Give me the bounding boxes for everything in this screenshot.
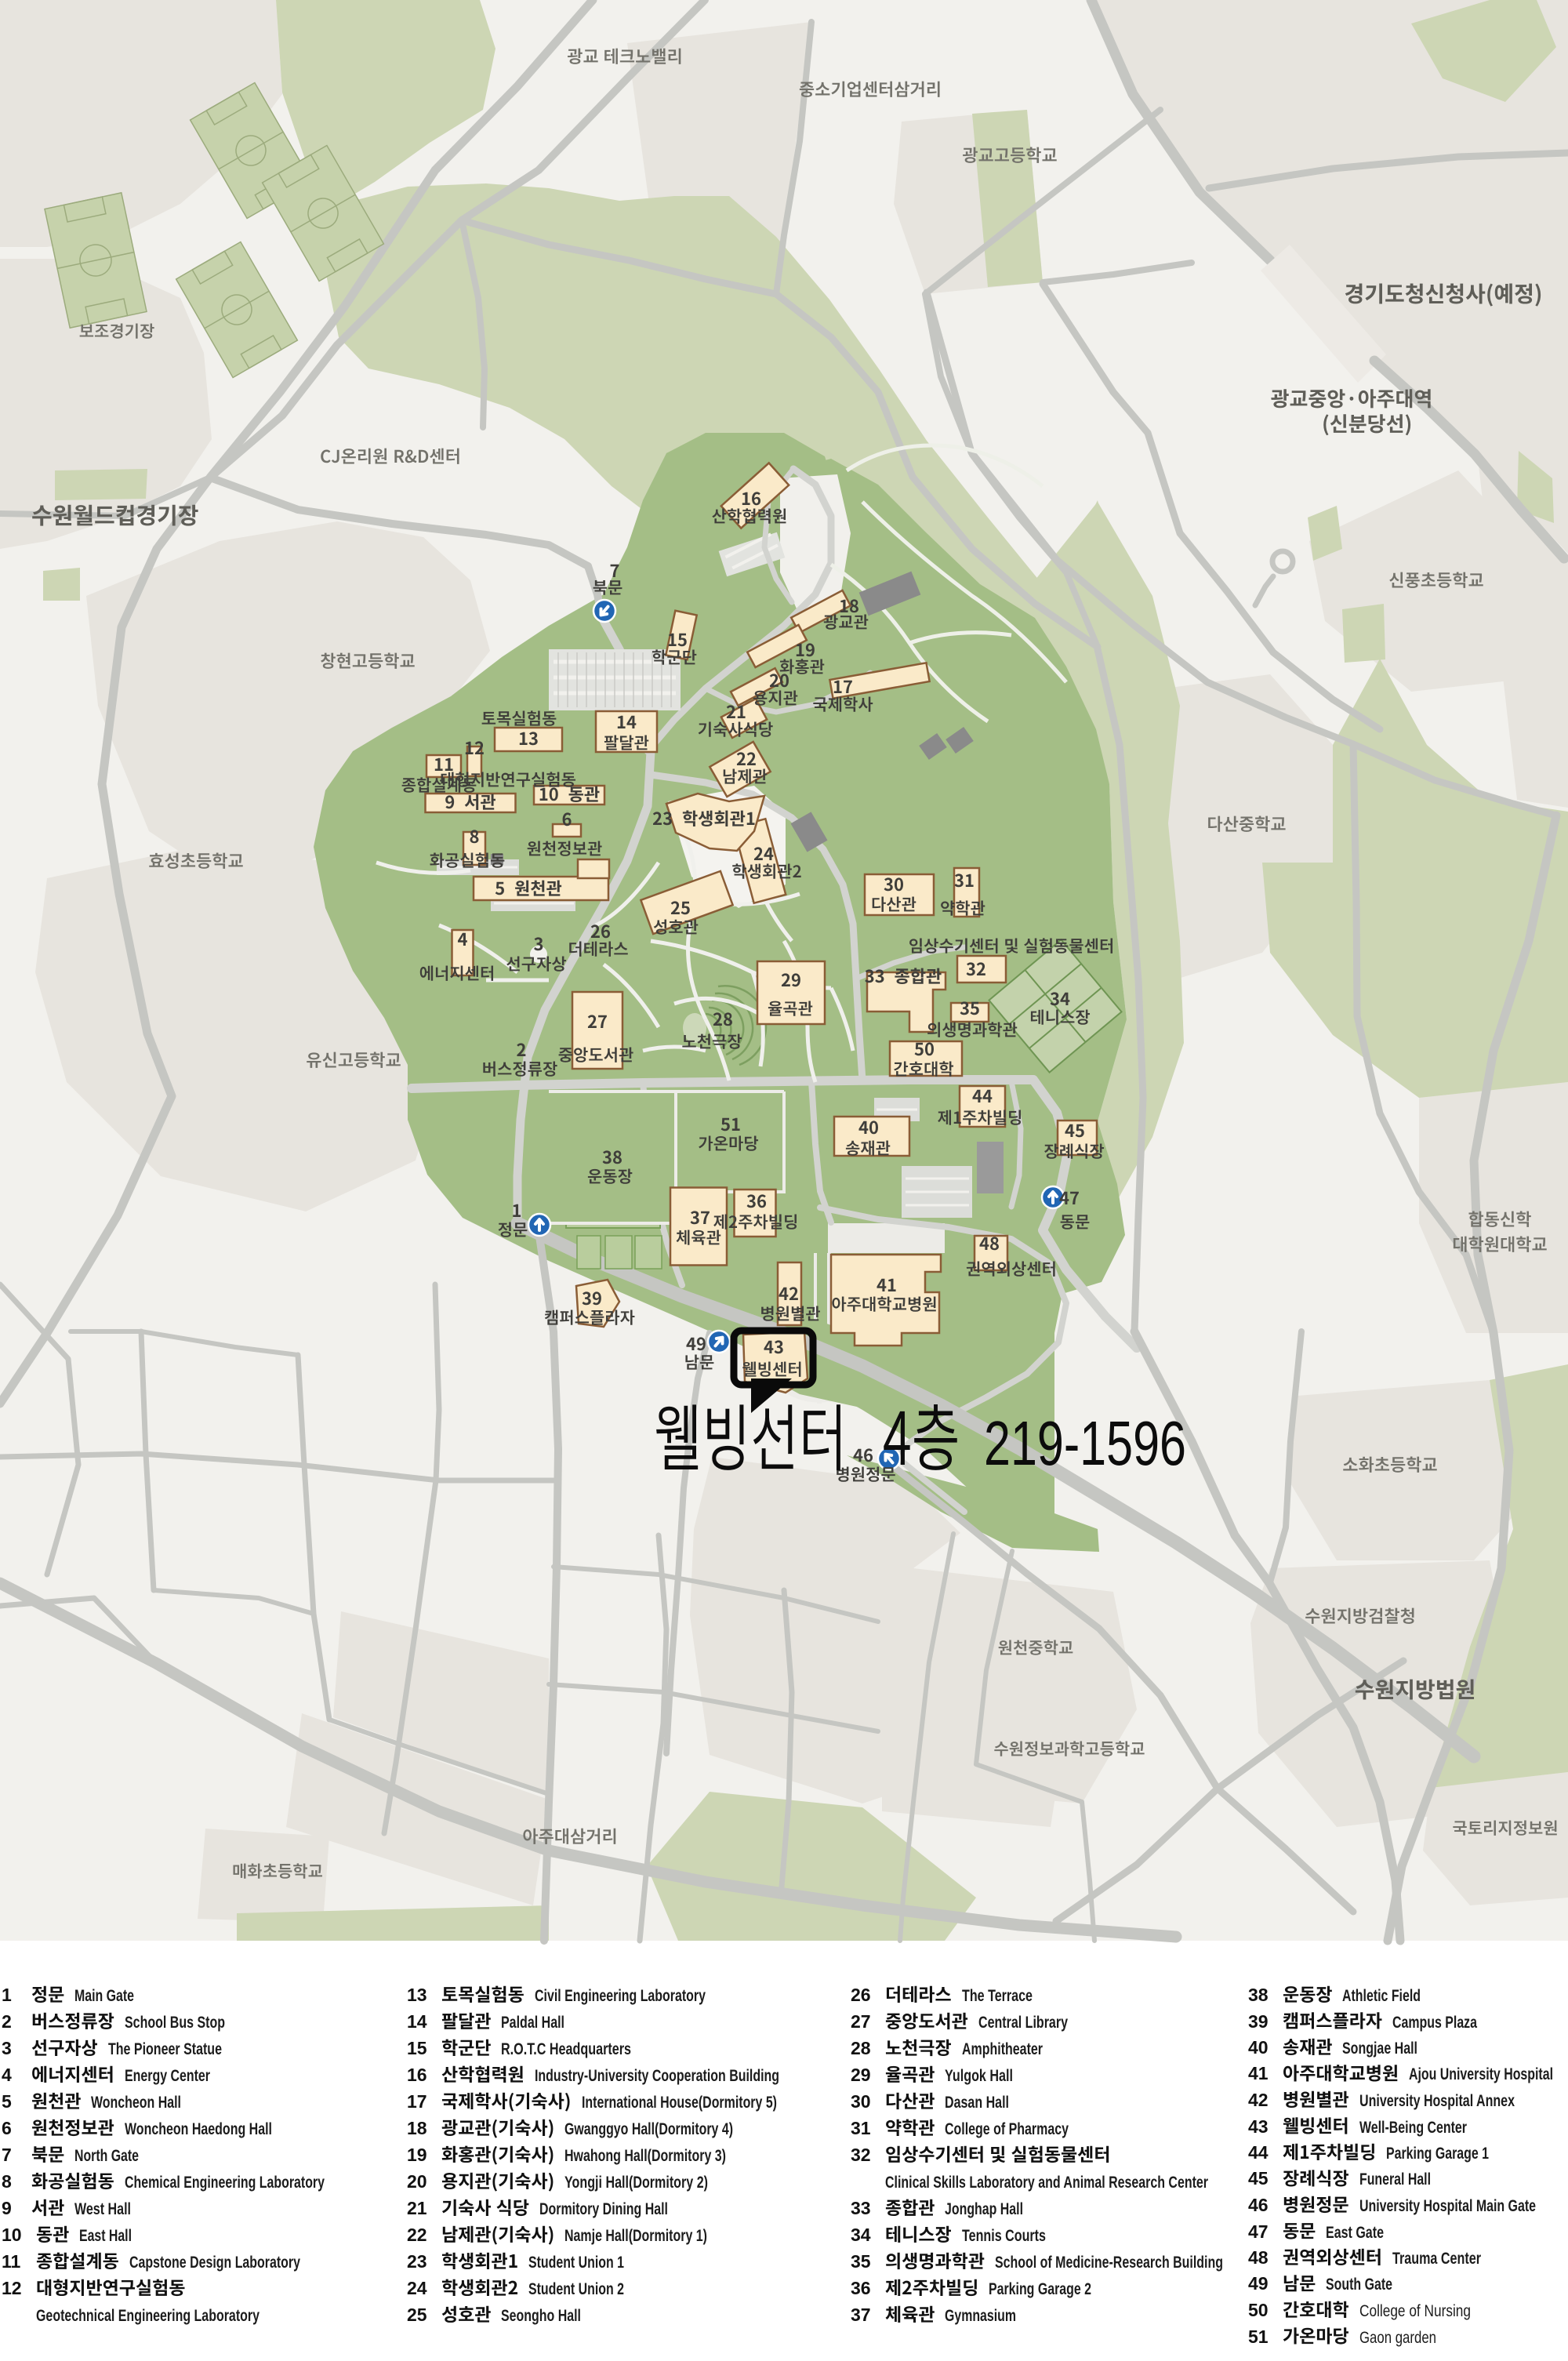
svg-text:University Hospital Main Gate: University Hospital Main Gate (1359, 2197, 1536, 2215)
svg-text:38: 38 (1248, 1985, 1269, 2005)
svg-text:South Gate: South Gate (1326, 2276, 1392, 2294)
svg-text:School of Medicine-Research Bu: School of Medicine-Research Building (995, 2254, 1223, 2272)
svg-text:Namje Hall(Dormitory 1): Namje Hall(Dormitory 1) (564, 2227, 707, 2245)
svg-text:North Gate: North Gate (74, 2147, 139, 2165)
svg-text:33: 33 (851, 2198, 871, 2218)
svg-text:48: 48 (1248, 2247, 1269, 2268)
svg-text:Gaon garden: Gaon garden (1359, 2329, 1436, 2347)
svg-text:College of Nursing: College of Nursing (1359, 2302, 1471, 2320)
svg-text:2: 2 (2, 2011, 12, 2032)
svg-text:47: 47 (1248, 2221, 1269, 2242)
svg-text:44: 44 (1248, 2142, 1269, 2163)
svg-text:Energy Center: Energy Center (125, 2067, 210, 2085)
svg-text:13: 13 (407, 1985, 427, 2005)
svg-text:12: 12 (2, 2278, 22, 2298)
svg-text:Trauma Center: Trauma Center (1392, 2250, 1481, 2268)
svg-text:Main Gate: Main Gate (74, 1987, 134, 2005)
svg-text:28: 28 (851, 2038, 871, 2058)
svg-text:27: 27 (851, 2011, 871, 2032)
svg-text:39: 39 (1248, 2011, 1269, 2032)
svg-text:Parking Garage 2: Parking Garage 2 (989, 2280, 1091, 2298)
svg-text:7: 7 (2, 2145, 12, 2165)
svg-text:Central Library: Central Library (978, 2014, 1068, 2032)
svg-text:Amphitheater: Amphitheater (962, 2040, 1043, 2058)
svg-text:Hwahong Hall(Dormitory 3): Hwahong Hall(Dormitory 3) (564, 2147, 726, 2165)
svg-text:1: 1 (2, 1985, 12, 2005)
svg-text:11: 11 (2, 2251, 21, 2272)
svg-text:Dormitory Dining Hall: Dormitory Dining Hall (539, 2200, 668, 2218)
svg-text:Paldal Hall: Paldal Hall (501, 2014, 564, 2032)
svg-text:Parking Garage 1: Parking Garage 1 (1386, 2145, 1489, 2163)
svg-text:Gwanggyo Hall(Dormitory 4): Gwanggyo Hall(Dormitory 4) (564, 2120, 733, 2138)
svg-text:219-1596: 219-1596 (984, 1408, 1186, 1478)
svg-text:East Hall: East Hall (79, 2227, 132, 2245)
svg-text:21: 21 (407, 2198, 427, 2218)
svg-text:International House(Dormitory: International House(Dormitory 5) (582, 2094, 777, 2112)
svg-text:Civil Engineering Laboratory: Civil Engineering Laboratory (535, 1987, 706, 2005)
svg-text:Student Union 1: Student Union 1 (528, 2254, 624, 2272)
svg-text:20: 20 (407, 2171, 427, 2192)
svg-text:15: 15 (407, 2038, 427, 2058)
svg-text:23: 23 (407, 2251, 427, 2272)
svg-text:32: 32 (851, 2145, 871, 2165)
svg-text:Funeral Hall: Funeral Hall (1359, 2170, 1431, 2188)
svg-text:8: 8 (2, 2171, 12, 2192)
svg-text:East Gate: East Gate (1326, 2224, 1384, 2242)
svg-text:43: 43 (1248, 2116, 1269, 2137)
svg-text:34: 34 (851, 2225, 871, 2245)
svg-text:22: 22 (407, 2225, 427, 2245)
svg-text:Chemical Engineering Laborator: Chemical Engineering Laboratory (125, 2174, 325, 2192)
svg-text:4: 4 (2, 2065, 12, 2085)
svg-text:30: 30 (851, 2091, 871, 2112)
svg-text:Industry-University Cooperatio: Industry-University Cooperation Building (535, 2067, 779, 2085)
svg-text:Well-Being Center: Well-Being Center (1359, 2119, 1467, 2137)
svg-text:5: 5 (2, 2091, 12, 2112)
svg-text:R.O.T.C Headquarters: R.O.T.C Headquarters (501, 2040, 631, 2058)
svg-text:Woncheon Hall: Woncheon Hall (91, 2094, 181, 2112)
svg-text:46: 46 (1248, 2195, 1269, 2215)
svg-text:Woncheon Haedong Hall: Woncheon Haedong Hall (125, 2120, 272, 2138)
svg-text:Seongho Hall: Seongho Hall (501, 2307, 581, 2325)
svg-text:14: 14 (407, 2011, 427, 2032)
svg-text:16: 16 (407, 2065, 427, 2085)
svg-text:29: 29 (851, 2065, 871, 2085)
svg-text:17: 17 (407, 2091, 427, 2112)
svg-text:9: 9 (2, 2198, 12, 2218)
svg-text:Yongji Hall(Dormitory 2): Yongji Hall(Dormitory 2) (564, 2174, 708, 2192)
svg-text:25: 25 (407, 2305, 427, 2325)
svg-text:Student Union 2: Student Union 2 (528, 2280, 624, 2298)
svg-text:45: 45 (1248, 2168, 1269, 2188)
svg-text:Ajou University Hospital: Ajou University Hospital (1409, 2065, 1553, 2083)
svg-text:West Hall: West Hall (74, 2200, 131, 2218)
svg-text:Jonghap Hall: Jonghap Hall (945, 2200, 1023, 2218)
svg-text:School Bus Stop: School Bus Stop (125, 2014, 225, 2032)
svg-text:50: 50 (1248, 2300, 1269, 2320)
svg-text:35: 35 (851, 2251, 871, 2272)
svg-text:42: 42 (1248, 2090, 1269, 2110)
svg-text:Dasan Hall: Dasan Hall (945, 2094, 1009, 2112)
svg-text:19: 19 (407, 2145, 427, 2165)
svg-text:10: 10 (2, 2225, 22, 2245)
svg-text:The Pioneer Statue: The Pioneer Statue (108, 2040, 222, 2058)
svg-text:36: 36 (851, 2278, 871, 2298)
svg-text:Yulgok Hall: Yulgok Hall (945, 2067, 1013, 2085)
svg-text:Songjae Hall: Songjae Hall (1342, 2040, 1417, 2058)
svg-text:26: 26 (851, 1985, 871, 2005)
svg-text:Athletic Field: Athletic Field (1342, 1987, 1421, 2005)
svg-text:3: 3 (2, 2038, 12, 2058)
svg-text:40: 40 (1248, 2037, 1269, 2058)
svg-text:University Hospital Annex: University Hospital Annex (1359, 2092, 1515, 2110)
svg-text:College of Pharmacy: College of Pharmacy (945, 2120, 1069, 2138)
svg-text:6: 6 (2, 2118, 12, 2138)
svg-text:Gymnasium: Gymnasium (945, 2307, 1016, 2325)
svg-text:41: 41 (1248, 2063, 1269, 2083)
svg-text:Capstone Design Laboratory: Capstone Design Laboratory (129, 2254, 300, 2272)
svg-text:51: 51 (1248, 2326, 1269, 2347)
svg-text:31: 31 (851, 2118, 871, 2138)
svg-text:24: 24 (407, 2278, 427, 2298)
svg-text:18: 18 (407, 2118, 427, 2138)
svg-text:37: 37 (851, 2305, 871, 2325)
svg-text:Geotechnical Engineering Labor: Geotechnical Engineering Laboratory (36, 2307, 260, 2325)
svg-text:49: 49 (1248, 2273, 1269, 2294)
svg-text:Campus Plaza: Campus Plaza (1392, 2014, 1477, 2032)
svg-text:The Terrace: The Terrace (962, 1987, 1033, 2005)
svg-text:Tennis Courts: Tennis Courts (962, 2227, 1046, 2245)
svg-text:Clinical Skills Laboratory and: Clinical Skills Laboratory and Animal Re… (885, 2174, 1208, 2192)
